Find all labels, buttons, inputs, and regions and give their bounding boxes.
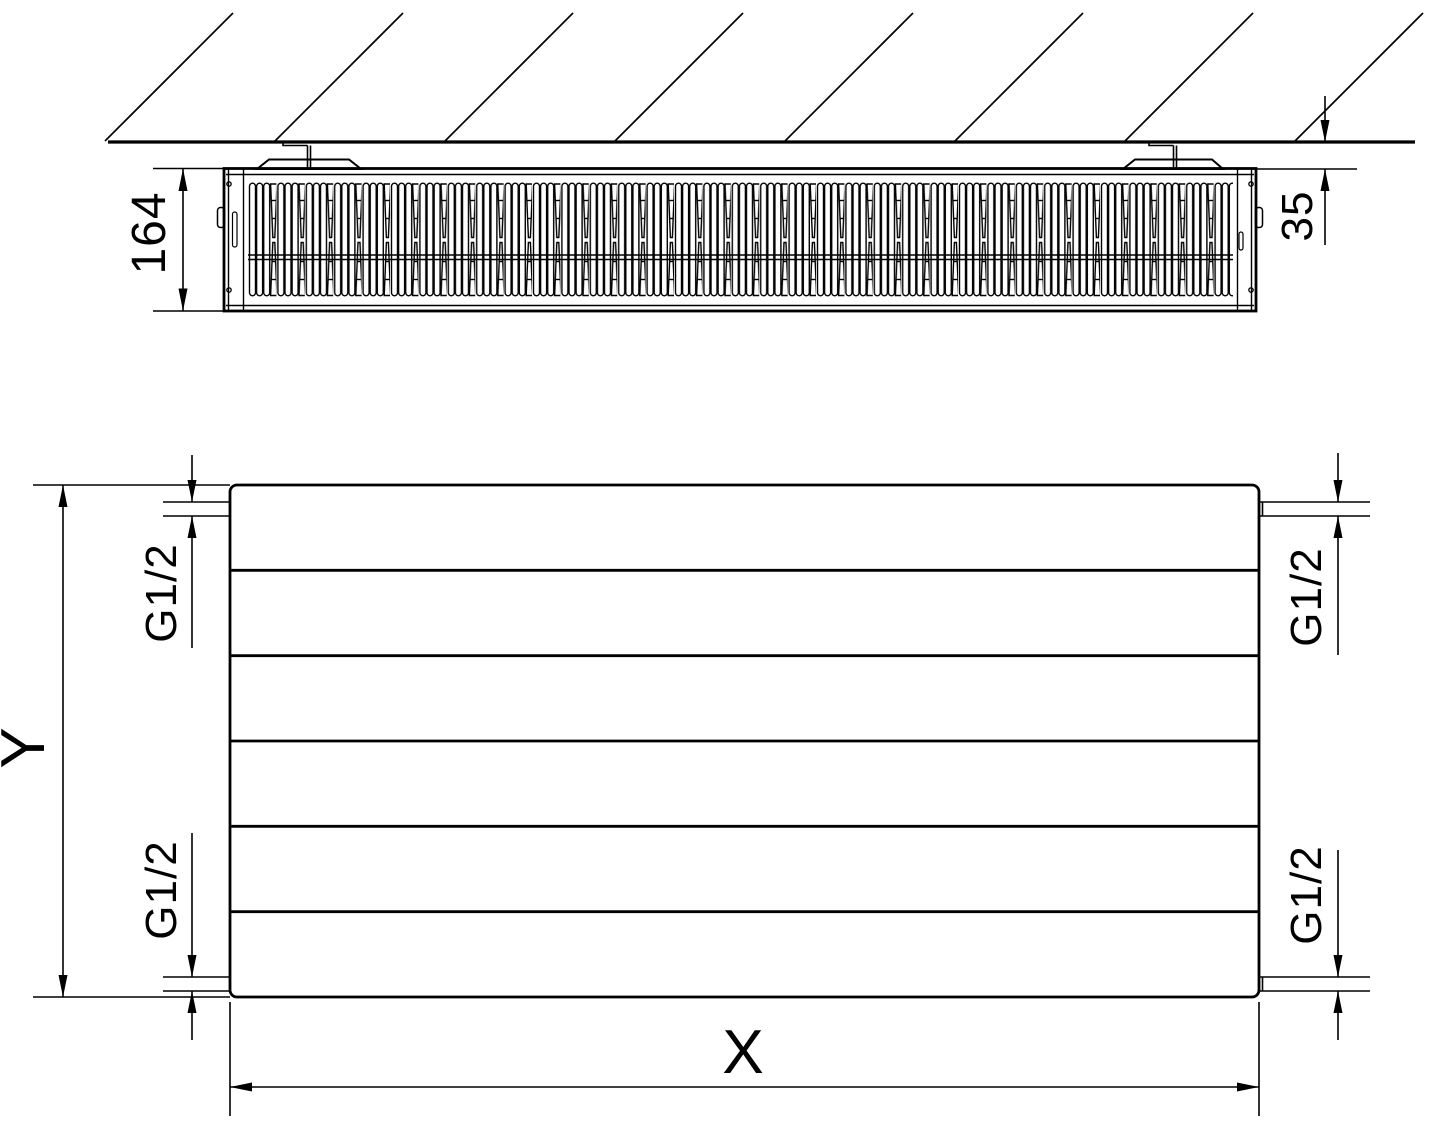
dimension-label-x: X [722, 1018, 763, 1087]
dimension-width-x: X [230, 1002, 1259, 1116]
dimension-height-y: Y [0, 485, 230, 997]
dimension-connection-bottom-right: G1/2 [1282, 845, 1343, 1040]
end-cap-left [218, 169, 244, 310]
connection-label-top-left: G1/2 [137, 543, 186, 642]
dimension-label-35: 35 [1273, 191, 1322, 242]
dimension-connection-top-right: G1/2 [1282, 453, 1343, 655]
dimension-depth-164: 164 [123, 169, 226, 312]
wall-hatching [105, 13, 1423, 141]
connection-label-top-right: G1/2 [1282, 547, 1331, 646]
connection-stubs [163, 502, 1370, 991]
panel-grooves [231, 570, 1258, 911]
radiator-technical-drawing: 164 35 [0, 0, 1441, 1125]
dimension-label-164: 164 [123, 191, 176, 274]
drawing-canvas: 164 35 [0, 0, 1441, 1125]
mounting-bracket-right [1123, 142, 1223, 169]
end-cap-right [1238, 169, 1263, 310]
connection-label-bottom-left: G1/2 [137, 840, 186, 939]
connection-label-bottom-right: G1/2 [1282, 845, 1331, 944]
radiator-top-view [218, 169, 1263, 312]
dimension-connection-bottom-left: G1/2 [137, 833, 197, 1040]
dimension-label-y: Y [0, 727, 58, 768]
radiator-front-view [230, 485, 1259, 997]
dimension-wall-distance-35: 35 [1256, 96, 1357, 245]
convector-fins [248, 183, 1233, 297]
dimension-connection-top-left: G1/2 [137, 455, 197, 648]
mounting-bracket-left [257, 142, 361, 169]
